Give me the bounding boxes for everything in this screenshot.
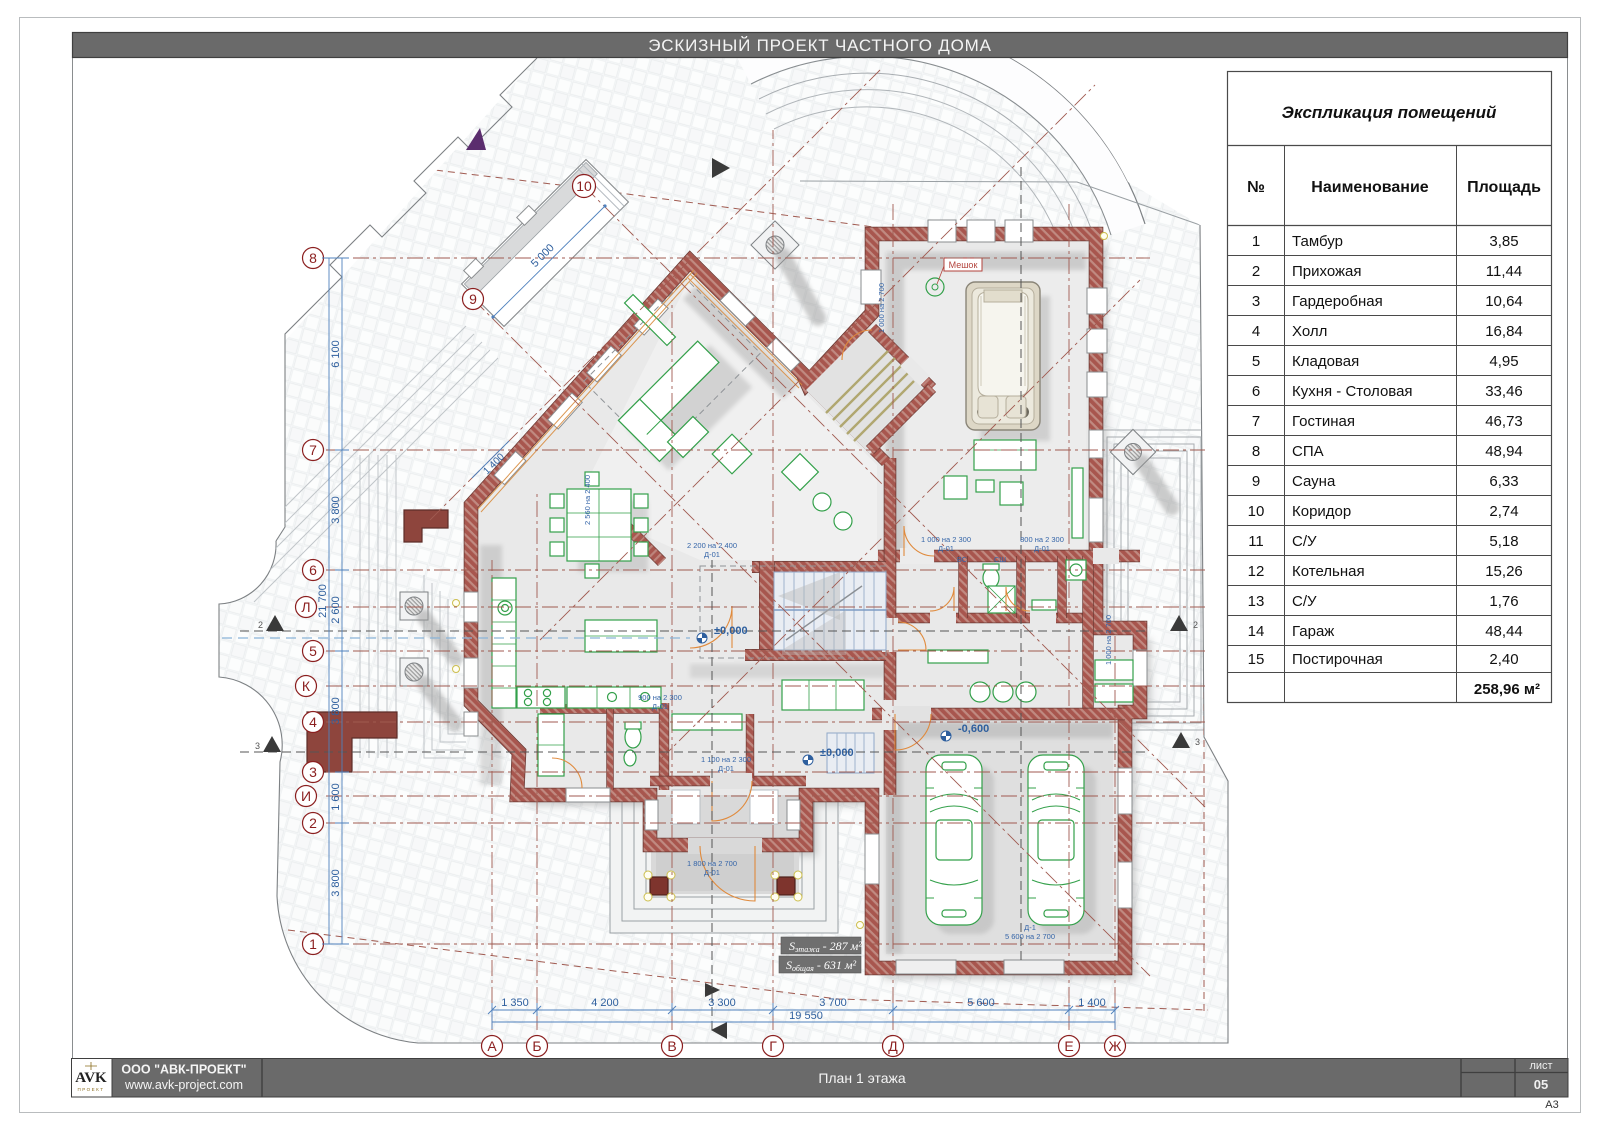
svg-text:С/У: С/У [1292, 593, 1317, 610]
svg-text:В: В [667, 1038, 676, 1054]
svg-text:4 200: 4 200 [591, 997, 619, 1009]
svg-text:лист: лист [1529, 1060, 1552, 1072]
svg-text:5 600: 5 600 [967, 997, 995, 1009]
svg-text:Прихожая: Прихожая [1292, 263, 1362, 280]
svg-text:1,76: 1,76 [1489, 593, 1518, 610]
svg-text:Коридор: Коридор [1292, 503, 1351, 520]
svg-text:3: 3 [1252, 293, 1260, 310]
svg-text:Е: Е [1064, 1038, 1073, 1054]
svg-text:ПРОЕКТ: ПРОЕКТ [77, 1087, 104, 1092]
svg-text:Наименование: Наименование [1311, 179, 1428, 196]
svg-text:5 600 на 2 700: 5 600 на 2 700 [1005, 932, 1055, 941]
svg-text:10,64: 10,64 [1485, 293, 1523, 310]
svg-text:2 200 на 2 400: 2 200 на 2 400 [687, 541, 737, 550]
svg-text:3 300: 3 300 [708, 997, 736, 1009]
svg-text:2 600: 2 600 [330, 596, 342, 624]
svg-text:800 на 2 300: 800 на 2 300 [1020, 535, 1064, 544]
svg-text:4: 4 [1252, 323, 1260, 340]
svg-text:1 000 на 2 700: 1 000 на 2 700 [877, 283, 886, 333]
svg-text:9: 9 [1252, 473, 1260, 490]
svg-text:Котельная: Котельная [1292, 563, 1365, 580]
svg-text:1: 1 [309, 936, 317, 952]
svg-text:33,46: 33,46 [1485, 383, 1523, 400]
svg-text:21 700: 21 700 [317, 584, 329, 618]
svg-text:2,74: 2,74 [1489, 503, 1518, 520]
svg-text:46,73: 46,73 [1485, 413, 1523, 430]
svg-text:10: 10 [1248, 503, 1265, 520]
svg-text:10: 10 [576, 178, 592, 194]
svg-text:7: 7 [309, 442, 317, 458]
svg-text:5,18: 5,18 [1489, 533, 1518, 550]
svg-text:6 100: 6 100 [330, 340, 342, 368]
svg-text:1 000 на 2 300: 1 000 на 2 300 [921, 535, 971, 544]
svg-text:Экспликация помещений: Экспликация помещений [1282, 103, 1497, 122]
svg-text:Гардеробная: Гардеробная [1292, 293, 1383, 310]
svg-text:1 350: 1 350 [501, 997, 529, 1009]
svg-text:258,96 м²: 258,96 м² [1474, 681, 1540, 698]
svg-text:4: 4 [309, 714, 317, 730]
svg-text:ЭСКИЗНЫЙ ПРОЕКТ ЧАСТНОГО ДОМА: ЭСКИЗНЫЙ ПРОЕКТ ЧАСТНОГО ДОМА [648, 36, 991, 55]
svg-text:8: 8 [1252, 443, 1260, 460]
svg-text:Гараж: Гараж [1292, 623, 1334, 640]
svg-text:Д-01: Д-01 [704, 868, 720, 877]
svg-text:ООО "АВК-ПРОЕКТ": ООО "АВК-ПРОЕКТ" [121, 1063, 246, 1077]
svg-text:1: 1 [1252, 233, 1260, 250]
svg-text:Постирочная: Постирочная [1292, 651, 1383, 668]
svg-text:Мешок: Мешок [949, 260, 978, 270]
svg-text:А: А [487, 1038, 497, 1054]
svg-text:900 на 2 300: 900 на 2 300 [638, 693, 682, 702]
svg-text:5: 5 [1252, 353, 1260, 370]
svg-text:План 1 этажа: План 1 этажа [818, 1070, 906, 1086]
svg-text:2: 2 [258, 620, 263, 630]
svg-text:А3: А3 [1545, 1099, 1558, 1111]
svg-text:Сауна: Сауна [1292, 473, 1336, 490]
svg-text:ВС: ВС [957, 555, 968, 564]
svg-text:К: К [302, 678, 311, 694]
svg-text:05: 05 [1534, 1077, 1548, 1092]
svg-text:Д-01: Д-01 [652, 702, 668, 711]
svg-text:3: 3 [309, 764, 317, 780]
svg-text:Тамбур: Тамбур [1292, 233, 1343, 250]
svg-text:12: 12 [1248, 563, 1265, 580]
svg-text:Кладовая: Кладовая [1292, 353, 1359, 370]
svg-text:±0,000: ±0,000 [714, 625, 748, 637]
svg-text:48,94: 48,94 [1485, 443, 1523, 460]
svg-text:С/У: С/У [1292, 533, 1317, 550]
svg-text:6: 6 [1252, 383, 1260, 400]
svg-text:2: 2 [1193, 620, 1198, 630]
svg-text:www.avk-project.com: www.avk-project.com [124, 1078, 243, 1092]
svg-text:2,40: 2,40 [1489, 651, 1518, 668]
svg-text:19 550: 19 550 [789, 1010, 823, 1022]
svg-text:3: 3 [1195, 737, 1200, 747]
svg-text:Кухня - Столовая: Кухня - Столовая [1292, 383, 1413, 400]
svg-text:Площадь: Площадь [1467, 179, 1541, 196]
svg-text:3: 3 [255, 741, 260, 751]
svg-text:8: 8 [309, 250, 317, 266]
svg-text:3 800: 3 800 [330, 869, 342, 897]
svg-text:СШ: СШ [994, 555, 1006, 564]
svg-text:Д-01: Д-01 [718, 764, 734, 773]
svg-text:3 700: 3 700 [819, 997, 847, 1009]
svg-text:48,44: 48,44 [1485, 623, 1523, 640]
svg-text:4,95: 4,95 [1489, 353, 1518, 370]
svg-text:7: 7 [1252, 413, 1260, 430]
svg-text:И: И [301, 788, 311, 804]
svg-text:11,44: 11,44 [1486, 263, 1522, 280]
svg-text:Ж: Ж [1109, 1038, 1122, 1054]
svg-text:1 400: 1 400 [1078, 997, 1106, 1009]
svg-text:14: 14 [1248, 623, 1265, 640]
svg-text:9: 9 [469, 291, 477, 307]
svg-text:1 800 на 2 700: 1 800 на 2 700 [687, 859, 737, 868]
svg-text:Д: Д [888, 1038, 898, 1054]
svg-text:2: 2 [1252, 263, 1260, 280]
svg-text:Л: Л [301, 599, 310, 615]
svg-text:15,26: 15,26 [1485, 563, 1523, 580]
svg-text:-0,600: -0,600 [958, 723, 989, 735]
svg-text:3 800: 3 800 [330, 496, 342, 524]
svg-text:6,33: 6,33 [1489, 473, 1518, 490]
svg-text:1 000 на 2 700: 1 000 на 2 700 [1104, 615, 1113, 665]
svg-text:13: 13 [1248, 593, 1265, 610]
svg-text:±0,000: ±0,000 [820, 747, 854, 759]
svg-text:6: 6 [309, 562, 317, 578]
svg-text:1 100 на 2 300: 1 100 на 2 300 [701, 755, 751, 764]
svg-text:Холл: Холл [1292, 323, 1327, 340]
svg-text:Гостиная: Гостиная [1292, 413, 1355, 430]
svg-text:Д-1: Д-1 [1024, 923, 1036, 932]
svg-text:2 560 на 2 400: 2 560 на 2 400 [583, 475, 592, 525]
svg-text:Д-01: Д-01 [938, 544, 954, 553]
svg-text:№: № [1247, 179, 1265, 196]
svg-text:15: 15 [1248, 651, 1265, 668]
svg-text:AVK: AVK [75, 1070, 107, 1086]
svg-text:3 800: 3 800 [330, 697, 342, 725]
svg-text:СПА: СПА [1292, 443, 1324, 460]
svg-text:Б: Б [532, 1038, 541, 1054]
svg-text:Д-01: Д-01 [704, 550, 720, 559]
svg-text:5: 5 [309, 643, 317, 659]
svg-text:Г: Г [769, 1038, 777, 1054]
svg-text:3,85: 3,85 [1489, 233, 1518, 250]
svg-text:Д-01: Д-01 [1034, 544, 1050, 553]
svg-text:1 600: 1 600 [330, 783, 342, 811]
svg-text:2: 2 [309, 815, 317, 831]
svg-text:16,84: 16,84 [1485, 323, 1523, 340]
svg-text:11: 11 [1248, 533, 1264, 550]
